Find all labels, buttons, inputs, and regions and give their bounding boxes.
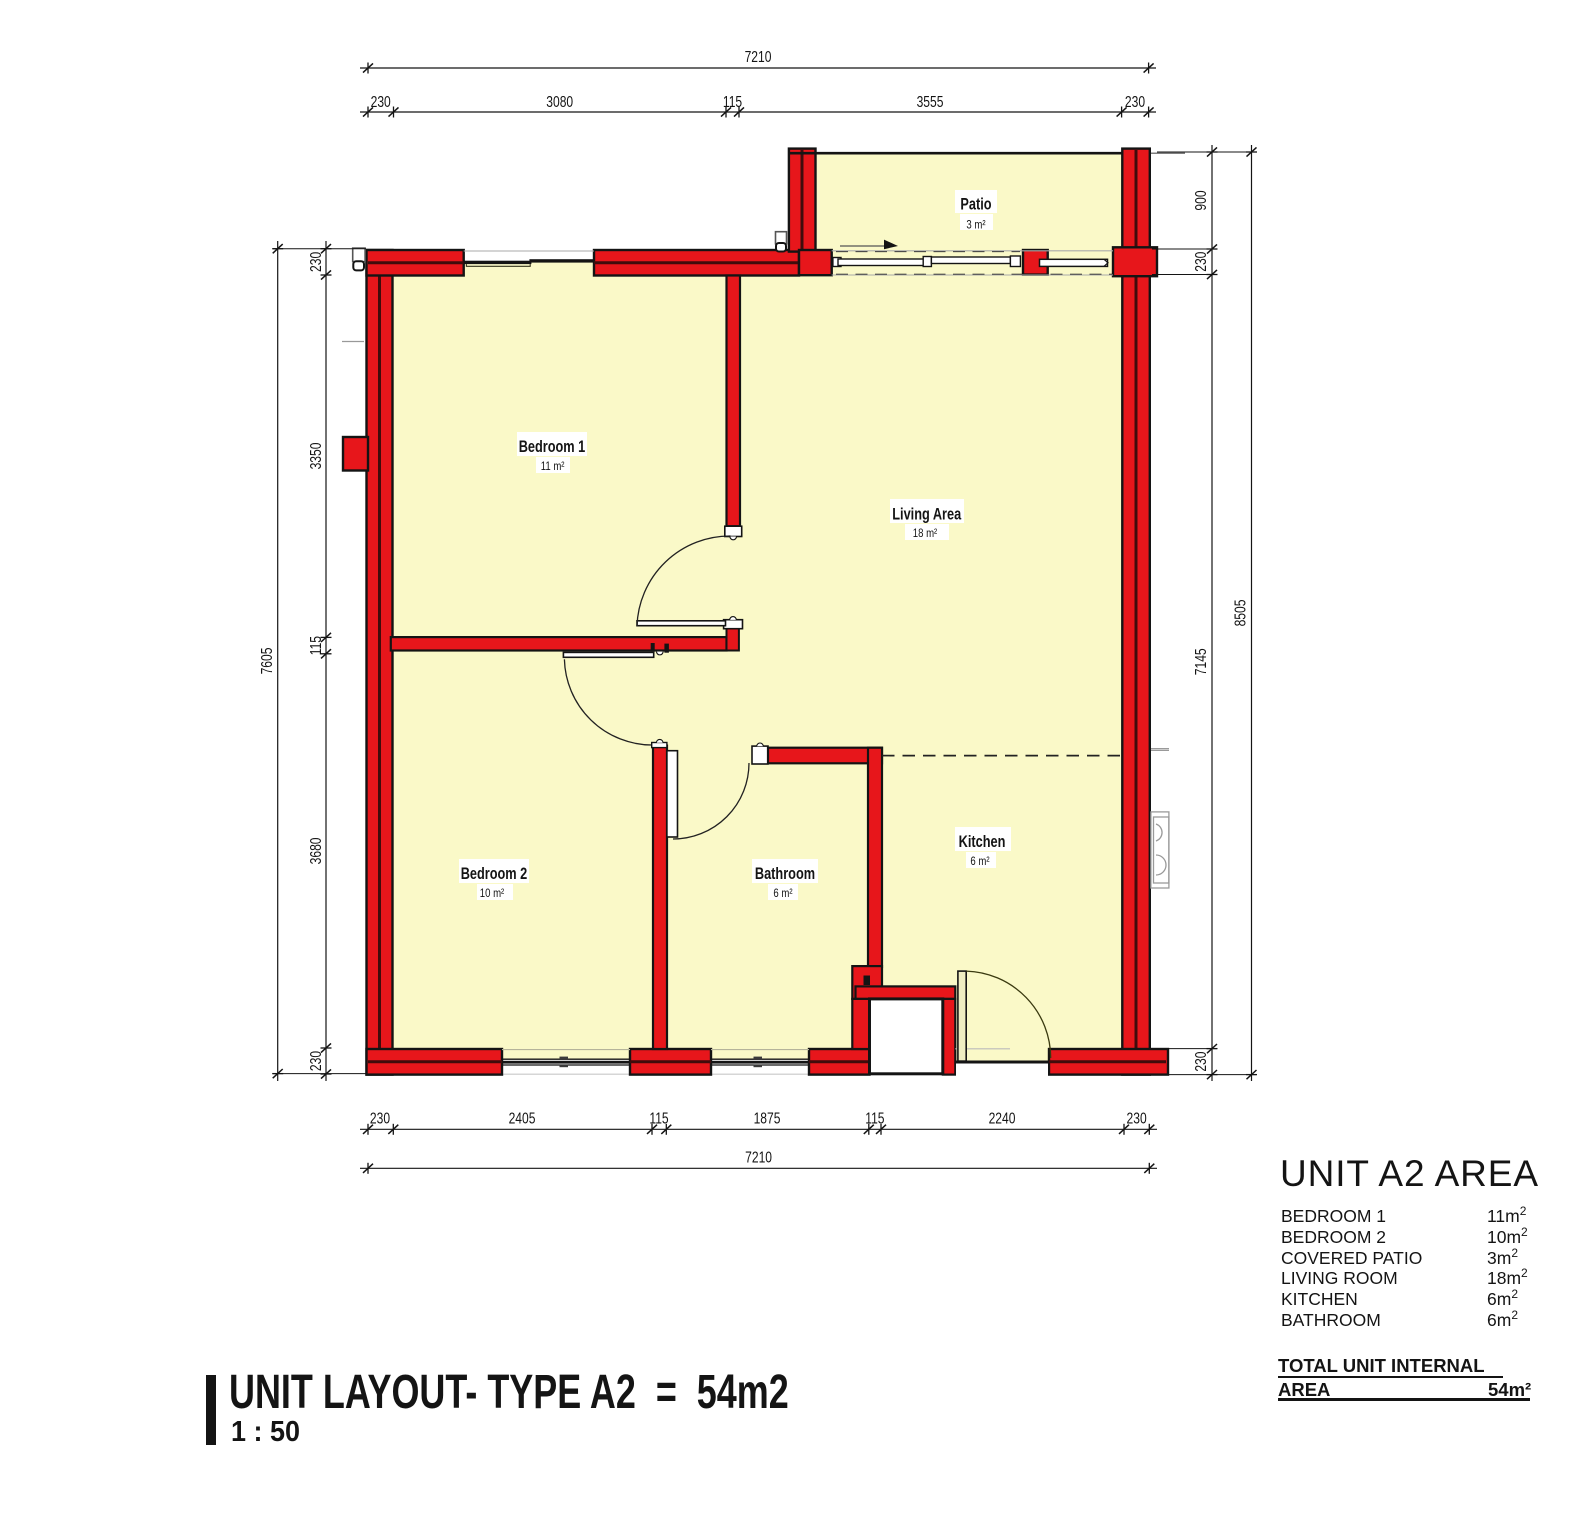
svg-text:3080: 3080 bbox=[546, 93, 573, 111]
svg-text:230: 230 bbox=[1125, 93, 1145, 111]
svg-text:115: 115 bbox=[307, 636, 325, 655]
svg-text:115: 115 bbox=[649, 1109, 668, 1127]
svg-text:230: 230 bbox=[1192, 251, 1210, 271]
svg-text:Bathroom: Bathroom bbox=[755, 864, 815, 883]
svg-text:6 m²: 6 m² bbox=[970, 855, 990, 868]
svg-text:7210: 7210 bbox=[745, 1148, 772, 1166]
svg-text:900: 900 bbox=[1192, 190, 1210, 210]
svg-text:230: 230 bbox=[1192, 1051, 1210, 1071]
svg-text:Living Area: Living Area bbox=[892, 505, 961, 524]
svg-text:230: 230 bbox=[307, 252, 325, 272]
svg-text:3555: 3555 bbox=[917, 93, 944, 111]
svg-text:7210: 7210 bbox=[745, 48, 772, 66]
svg-text:2405: 2405 bbox=[509, 1109, 536, 1127]
svg-text:230: 230 bbox=[370, 1109, 390, 1127]
svg-text:8505: 8505 bbox=[1231, 599, 1249, 626]
svg-text:11 m²: 11 m² bbox=[541, 460, 565, 473]
svg-text:7605: 7605 bbox=[258, 647, 276, 674]
svg-text:Patio: Patio bbox=[960, 195, 991, 214]
svg-text:Bedroom 1: Bedroom 1 bbox=[519, 437, 586, 456]
svg-text:3680: 3680 bbox=[307, 837, 325, 864]
svg-text:7145: 7145 bbox=[1192, 648, 1210, 675]
svg-text:3 m²: 3 m² bbox=[966, 218, 986, 231]
svg-text:10 m²: 10 m² bbox=[480, 887, 505, 900]
svg-text:115: 115 bbox=[865, 1109, 884, 1127]
svg-text:230: 230 bbox=[1127, 1109, 1147, 1127]
svg-text:18 m²: 18 m² bbox=[913, 527, 938, 540]
svg-text:1875: 1875 bbox=[754, 1109, 781, 1127]
svg-text:6 m²: 6 m² bbox=[773, 887, 793, 900]
svg-text:Kitchen: Kitchen bbox=[959, 832, 1006, 851]
svg-text:2240: 2240 bbox=[989, 1109, 1016, 1127]
svg-text:230: 230 bbox=[371, 93, 391, 111]
svg-text:115: 115 bbox=[723, 93, 742, 111]
svg-text:3350: 3350 bbox=[307, 442, 325, 469]
svg-text:Bedroom 2: Bedroom 2 bbox=[461, 864, 528, 883]
svg-text:230: 230 bbox=[307, 1051, 325, 1071]
